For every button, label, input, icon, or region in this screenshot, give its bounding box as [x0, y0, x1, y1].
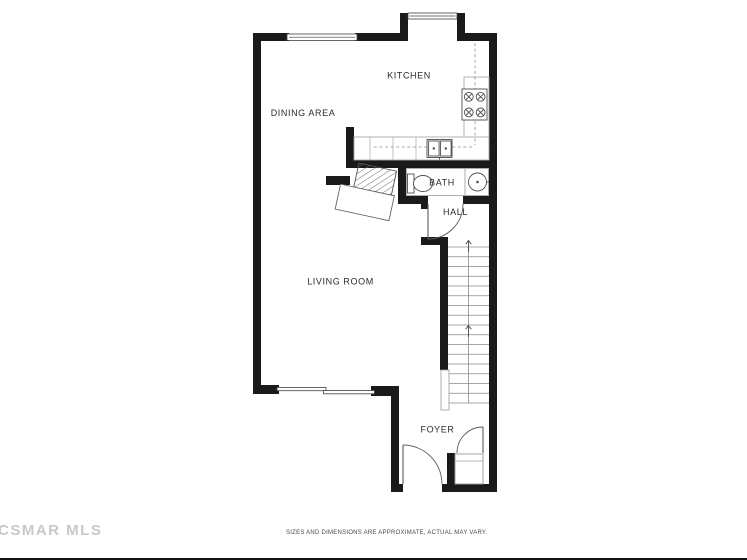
upper-cabinets-dashed-line [372, 43, 475, 147]
bath-bottom-wall-left [398, 196, 428, 204]
fireplace-icon [335, 160, 399, 220]
slider-panel-left [277, 387, 326, 390]
room-labels: KITCHEN DINING AREA BATH HALL LIVING ROO… [271, 71, 468, 435]
closet-interior [455, 454, 483, 484]
foyer-closet [455, 454, 483, 484]
hall-label: HALL [443, 207, 468, 217]
right-wall [489, 33, 497, 492]
living-bottom-wall-left-cap [253, 385, 279, 394]
kitchen-label: KITCHEN [387, 71, 431, 81]
staircase [441, 240, 489, 410]
living-room-label: LIVING ROOM [307, 277, 374, 287]
foyer-bottom-wall-left [391, 484, 403, 492]
living-foyer-wall [391, 386, 399, 492]
stove-icon [462, 89, 487, 120]
kitchen-bay-left-jamb [400, 13, 408, 41]
dining-living-stub-wall [326, 176, 350, 185]
kitchen-counter-bottom-run [354, 137, 489, 160]
stair-railing [441, 370, 449, 410]
bath-label: BATH [429, 178, 455, 188]
closet-door [457, 427, 483, 453]
kitchen-fixtures [354, 43, 489, 160]
bath-bottom-wall-right [463, 196, 497, 204]
kitchen-sink-icon [427, 140, 452, 160]
hall-door-jamb [421, 204, 428, 209]
left-wall [253, 33, 261, 393]
sliding-glass-door [277, 387, 375, 393]
stair-side-wall [440, 237, 448, 370]
closet-left-wall [447, 453, 455, 492]
dining-area-label: DINING AREA [271, 108, 336, 118]
disclaimer-text: SIZES AND DIMENSIONS ARE APPROXIMATE, AC… [286, 530, 487, 536]
slider-panel-right [324, 391, 375, 394]
floor-plan-drawing: KITCHEN DINING AREA BATH HALL LIVING ROO… [0, 0, 747, 560]
floor-plan-image: KITCHEN DINING AREA BATH HALL LIVING ROO… [0, 0, 747, 560]
mls-watermark: CSMAR MLS [0, 522, 102, 539]
exterior-walls [253, 13, 497, 492]
entry-door [403, 445, 442, 484]
foyer-label: FOYER [420, 425, 454, 435]
